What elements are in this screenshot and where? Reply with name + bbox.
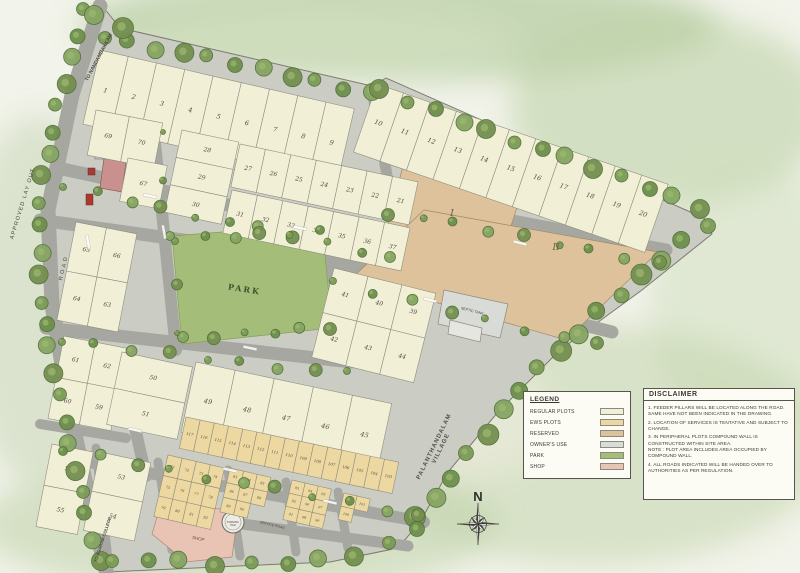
tree-highlight (374, 84, 382, 92)
tree-highlight (482, 316, 485, 319)
tree-highlight (60, 448, 64, 452)
tree-highlight (160, 178, 163, 181)
disclaimer-title: DISCLAIMER (644, 389, 794, 401)
disclaimer-item: 4. ALL ROADS INDICATED WILL BE HANDED OV… (648, 462, 789, 475)
tree-highlight (248, 558, 253, 563)
tree-highlight (60, 184, 63, 187)
plot-block-ews_c: 939495929697919899 (283, 480, 332, 529)
tree-highlight (448, 308, 453, 313)
tree-highlight (593, 339, 598, 344)
legend-color-swatch (600, 430, 624, 437)
tree (520, 327, 529, 336)
tree-highlight (51, 101, 56, 106)
legend: LEGEND REGULAR PLOTSEWS PLOTSRESERVEDOWN… (523, 391, 631, 479)
tree-highlight (210, 334, 215, 339)
tree-highlight (636, 269, 644, 277)
legend-item-regular: REGULAR PLOTS (530, 406, 624, 417)
legend-item-park: PARK (530, 450, 624, 461)
tree-highlight (38, 299, 43, 304)
tree-highlight (70, 466, 78, 474)
tree (358, 248, 367, 257)
tree-highlight (704, 222, 710, 228)
plot-number-67: 67 (139, 180, 148, 188)
tree-highlight (240, 479, 244, 483)
tree-highlight (409, 296, 413, 300)
tree-highlight (560, 151, 567, 158)
tree-highlight (203, 476, 207, 480)
tree (59, 447, 68, 456)
tree-highlight (695, 204, 703, 212)
plot-number-69: 69 (104, 132, 113, 140)
tree-highlight (255, 229, 260, 234)
tree (316, 226, 325, 235)
tree-highlight (175, 331, 177, 333)
disclaimer-item: 3. IN PERIPHERAL PLOTS COMPOUND WALL IS … (648, 434, 789, 459)
plot-number-66: 66 (112, 252, 121, 260)
tree-highlight (173, 281, 177, 285)
compass-center (477, 523, 480, 526)
tree-highlight (61, 79, 69, 87)
tree-highlight (128, 347, 132, 351)
tree-highlight (202, 233, 206, 237)
compass-north-label: N (473, 489, 482, 504)
tree-highlight (514, 386, 521, 393)
plot-number-62: 62 (103, 362, 112, 370)
plot-number-59: 59 (95, 403, 104, 411)
tree (226, 218, 235, 227)
tree-highlight (676, 235, 683, 242)
tree-highlight (90, 340, 94, 344)
plot-number-61: 61 (71, 356, 80, 364)
plot-block-blk_50_51: 5051 (107, 352, 193, 439)
tree-highlight (359, 250, 363, 254)
tree (201, 232, 210, 241)
legend-item-ews: EWS PLOTS (530, 417, 624, 428)
reserved-2-label: II (551, 243, 560, 253)
tree-highlight (33, 269, 41, 277)
disclaimer-item: 1. FEEDER PILLARS WILL BE LOCATED ALONG … (648, 405, 789, 418)
tree-highlight (573, 329, 581, 337)
legend-color-swatch (600, 408, 624, 415)
tree-highlight (326, 325, 331, 330)
tree-highlight (460, 118, 467, 125)
tree-highlight (166, 348, 171, 353)
tree-highlight (80, 508, 86, 514)
tree-highlight (179, 333, 183, 337)
tree-highlight (117, 22, 125, 30)
tree-highlight (43, 320, 49, 326)
tree-highlight (144, 556, 150, 562)
tree (166, 232, 175, 241)
tree-highlight (432, 105, 438, 111)
tree-highlight (42, 340, 49, 347)
legend-color-swatch (600, 452, 624, 459)
tree-highlight (173, 555, 180, 562)
tree (235, 357, 244, 366)
tree-highlight (330, 278, 333, 281)
tree-highlight (56, 390, 61, 395)
tree-highlight (259, 63, 266, 70)
legend-item-shop: SHOP (530, 461, 624, 472)
tree-highlight (369, 291, 373, 295)
tree-highlight (446, 474, 453, 481)
tree-highlight (192, 215, 195, 218)
tree-highlight (532, 363, 538, 369)
tree-highlight (385, 539, 390, 544)
tree-highlight (287, 72, 295, 80)
tree (345, 496, 354, 505)
tree-highlight (284, 559, 290, 565)
tree-highlight (588, 164, 596, 172)
legend-item-label: RESERVED (530, 431, 559, 437)
tree-highlight (510, 138, 515, 143)
tree-highlight (347, 498, 351, 502)
feeder-marker (88, 168, 95, 175)
legend-color-swatch (600, 419, 624, 426)
tree-highlight (89, 10, 97, 18)
tree-highlight (35, 199, 40, 204)
legend-item-owners: OWNER'S USE (530, 439, 624, 450)
tree-highlight (242, 330, 245, 333)
disclaimer-item: 2. LOCATION OF SERVICES IS TENTATIVE AND… (648, 420, 789, 433)
tree-highlight (73, 32, 79, 38)
tree-highlight (274, 365, 278, 369)
tree-highlight (309, 494, 312, 497)
tree-highlight (79, 488, 84, 493)
tree (93, 187, 102, 196)
tree-highlight (386, 253, 390, 257)
tree-highlight (403, 98, 408, 103)
tree-highlight (227, 219, 231, 223)
tree-highlight (45, 149, 52, 156)
tree-highlight (88, 535, 95, 542)
tree (584, 244, 593, 253)
tree-highlight (483, 429, 491, 437)
tree-highlight (617, 171, 622, 176)
tree-highlight (539, 145, 545, 151)
legend-item-label: PARK (530, 453, 544, 459)
tree-highlight (67, 52, 74, 59)
tree-highlight (210, 561, 218, 569)
tree-highlight (414, 511, 419, 516)
plot-number-55: 55 (56, 506, 65, 514)
tree (202, 475, 211, 484)
legend-item-label: SHOP (530, 464, 545, 470)
tree-highlight (35, 220, 41, 226)
tree-highlight (312, 366, 317, 371)
tree-highlight (166, 466, 169, 469)
tree-highlight (63, 438, 70, 445)
tree-highlight (617, 291, 623, 297)
legend-title: LEGEND (530, 396, 624, 403)
tree-highlight (339, 85, 345, 91)
tree-highlight (36, 170, 44, 178)
tree-highlight (384, 508, 388, 512)
tree-highlight (232, 234, 236, 238)
tree-highlight (555, 345, 563, 353)
tree (368, 289, 377, 298)
tree-highlight (48, 368, 56, 376)
tree-highlight (205, 357, 208, 360)
tree-highlight (271, 483, 276, 488)
tree-highlight (179, 48, 187, 56)
tree-highlight (134, 461, 139, 466)
tree-highlight (202, 51, 207, 56)
legend-item-label: REGULAR PLOTS (530, 409, 575, 415)
tree-highlight (167, 233, 171, 237)
tree-highlight (384, 211, 389, 216)
tree-highlight (108, 557, 113, 562)
tree-highlight (313, 554, 320, 561)
tree-highlight (38, 248, 45, 255)
tree-highlight (520, 231, 525, 236)
tree-highlight (621, 255, 625, 259)
tree-highlight (310, 76, 315, 81)
tree-highlight (485, 228, 489, 232)
legend-color-swatch (600, 441, 624, 448)
tree-highlight (129, 199, 133, 203)
tree-highlight (231, 61, 237, 67)
plot-number-70: 70 (137, 139, 146, 147)
disclaimer: DISCLAIMER 1. FEEDER PILLARS WILL BE LOC… (643, 388, 795, 500)
tree-highlight (646, 185, 652, 191)
tree-highlight (296, 324, 300, 328)
legend-item-label: OWNER'S USE (530, 442, 567, 448)
tree-highlight (48, 128, 54, 134)
tree-highlight (325, 239, 328, 242)
tree-highlight (591, 306, 598, 313)
legend-color-swatch (600, 463, 624, 470)
tree-highlight (481, 124, 489, 132)
tree-highlight (421, 215, 424, 218)
tree-highlight (156, 203, 161, 208)
tree-highlight (344, 368, 347, 371)
tree (271, 329, 280, 338)
plot-number-63: 63 (103, 301, 112, 309)
tree-highlight (656, 258, 661, 263)
legend-item-label: EWS PLOTS (530, 420, 561, 426)
tree-highlight (79, 5, 84, 10)
tree-highlight (667, 191, 674, 198)
tree-highlight (161, 130, 163, 132)
site-plan-page: 1234567891011121314151617181920697067282… (0, 0, 800, 573)
tree-highlight (59, 339, 62, 342)
tree (89, 339, 98, 348)
tree-highlight (349, 551, 357, 559)
tree-highlight (97, 451, 101, 455)
legend-item-reserved: RESERVED (530, 428, 624, 439)
tree-highlight (236, 358, 240, 362)
tree-highlight (287, 232, 290, 235)
tree-highlight (151, 45, 158, 52)
tree-highlight (413, 525, 419, 531)
tree-highlight (95, 188, 99, 192)
tree-highlight (498, 404, 506, 412)
tree-highlight (272, 330, 276, 334)
feeder-marker (86, 194, 93, 205)
tree-highlight (63, 418, 69, 424)
tree-highlight (431, 493, 439, 501)
reserved-1-label: I (449, 209, 454, 219)
plot-number-64: 64 (72, 295, 81, 303)
tree-highlight (317, 227, 321, 231)
tree-highlight (461, 449, 467, 455)
tree-highlight (561, 333, 565, 337)
tree-highlight (585, 245, 589, 249)
tree-highlight (521, 328, 525, 332)
